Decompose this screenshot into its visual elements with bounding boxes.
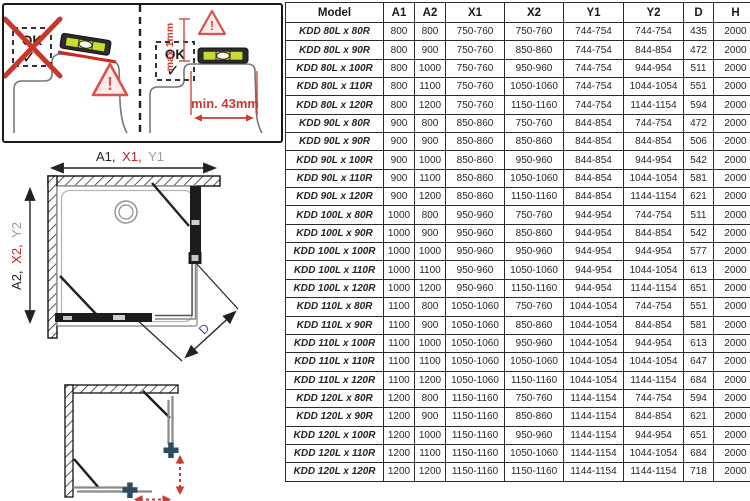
value-cell: 2000 bbox=[714, 334, 750, 352]
min-width-label: min. 43mm bbox=[191, 96, 259, 111]
value-cell: 800 bbox=[384, 59, 415, 77]
value-cell: 1200 bbox=[415, 279, 446, 297]
value-cell: 950-960 bbox=[505, 334, 564, 352]
value-cell: 950-960 bbox=[446, 279, 505, 297]
value-cell: 1200 bbox=[384, 389, 415, 407]
value-cell: 750-760 bbox=[505, 114, 564, 132]
column-header-a2: A2 bbox=[415, 3, 446, 23]
model-cell: KDD 120L x 100R bbox=[286, 426, 384, 444]
wall-top bbox=[65, 385, 178, 393]
model-cell: KDD 110L x 110R bbox=[286, 353, 384, 371]
model-cell: KDD 80L x 90R bbox=[286, 41, 384, 59]
value-cell: 850-860 bbox=[505, 133, 564, 151]
hinge-mark bbox=[192, 255, 199, 261]
column-header-a1: A1 bbox=[384, 3, 415, 23]
value-cell: 1000 bbox=[415, 59, 446, 77]
value-cell: 950-960 bbox=[446, 206, 505, 224]
value-cell: 744-754 bbox=[564, 23, 624, 41]
value-cell: 2000 bbox=[714, 298, 750, 316]
value-cell: 800 bbox=[415, 206, 446, 224]
value-cell: 1050-1060 bbox=[505, 169, 564, 187]
value-cell: 2000 bbox=[714, 389, 750, 407]
value-cell: 1050-1060 bbox=[446, 316, 505, 334]
value-cell: 1144-1154 bbox=[624, 371, 684, 389]
table-row: KDD 100L x 90R1000900950-960850-860944-9… bbox=[286, 224, 750, 242]
value-cell: 1144-1154 bbox=[564, 426, 624, 444]
value-cell: 844-854 bbox=[564, 151, 624, 169]
model-cell: KDD 100L x 110R bbox=[286, 261, 384, 279]
correct-install-figure: OK ✓ max 1mm ! bbox=[150, 11, 262, 133]
table-row: KDD 90L x 120R9001200850-8601150-1160844… bbox=[286, 188, 750, 206]
table-row: KDD 80L x 80R800800750-760750-760744-754… bbox=[286, 23, 750, 41]
value-cell: 950-960 bbox=[446, 261, 505, 279]
dim-a1: A1, bbox=[96, 149, 116, 164]
value-cell: 744-754 bbox=[564, 59, 624, 77]
value-cell: 1050-1060 bbox=[505, 261, 564, 279]
value-cell: 944-954 bbox=[564, 261, 624, 279]
value-cell: 750-760 bbox=[505, 298, 564, 316]
value-cell: 900 bbox=[415, 133, 446, 151]
value-cell: 744-754 bbox=[624, 298, 684, 316]
value-cell: 613 bbox=[684, 261, 714, 279]
value-cell: 950-960 bbox=[505, 59, 564, 77]
value-cell: 850-860 bbox=[505, 224, 564, 242]
value-cell: 844-854 bbox=[624, 224, 684, 242]
value-cell: 1000 bbox=[384, 243, 415, 261]
table-row: KDD 110L x 100R110010001050-1060950-9601… bbox=[286, 334, 750, 352]
value-cell: 944-954 bbox=[624, 243, 684, 261]
value-cell: 950-960 bbox=[505, 151, 564, 169]
dim-y1: Y1 bbox=[148, 149, 164, 164]
value-cell: 2000 bbox=[714, 444, 750, 462]
value-cell: 1100 bbox=[415, 444, 446, 462]
model-cell: KDD 90L x 100R bbox=[286, 151, 384, 169]
value-cell: 1044-1054 bbox=[624, 353, 684, 371]
value-cell: 472 bbox=[684, 41, 714, 59]
value-cell: 1200 bbox=[384, 444, 415, 462]
value-cell: 621 bbox=[684, 188, 714, 206]
handle-cross-icon bbox=[164, 443, 179, 459]
value-cell: 1144-1154 bbox=[564, 389, 624, 407]
value-cell: 1100 bbox=[384, 353, 415, 371]
value-cell: 844-854 bbox=[564, 169, 624, 187]
table-row: KDD 110L x 90R11009001050-1060850-860104… bbox=[286, 316, 750, 334]
value-cell: 2000 bbox=[714, 114, 750, 132]
value-cell: 1044-1054 bbox=[564, 334, 624, 352]
value-cell: 800 bbox=[384, 96, 415, 114]
value-cell: 1100 bbox=[415, 78, 446, 96]
value-cell: 1000 bbox=[415, 151, 446, 169]
value-cell: 1050-1060 bbox=[446, 334, 505, 352]
value-cell: 850-860 bbox=[446, 188, 505, 206]
value-cell: 944-954 bbox=[564, 279, 624, 297]
value-cell: 1050-1060 bbox=[446, 353, 505, 371]
value-cell: 2000 bbox=[714, 206, 750, 224]
value-cell: 2000 bbox=[714, 224, 750, 242]
value-cell: 1100 bbox=[384, 334, 415, 352]
value-cell: 944-954 bbox=[624, 426, 684, 444]
column-header-model: Model bbox=[286, 3, 384, 23]
value-cell: 850-860 bbox=[446, 133, 505, 151]
value-cell: 1150-1160 bbox=[446, 389, 505, 407]
hinge-mark bbox=[63, 316, 72, 320]
model-cell: KDD 120L x 110R bbox=[286, 444, 384, 462]
value-cell: 1000 bbox=[384, 224, 415, 242]
value-cell: 511 bbox=[684, 59, 714, 77]
value-cell: 1044-1054 bbox=[624, 169, 684, 187]
table-row: KDD 110L x 80R11008001050-1060750-760104… bbox=[286, 298, 750, 316]
model-cell: KDD 90L x 90R bbox=[286, 133, 384, 151]
value-cell: 744-754 bbox=[564, 96, 624, 114]
column-header-d: D bbox=[684, 3, 714, 23]
value-cell: 1200 bbox=[384, 463, 415, 481]
value-cell: 2000 bbox=[714, 279, 750, 297]
model-cell: KDD 110L x 80R bbox=[286, 298, 384, 316]
value-cell: 577 bbox=[684, 243, 714, 261]
value-cell: 2000 bbox=[714, 408, 750, 426]
value-cell: 1000 bbox=[415, 426, 446, 444]
hinge-mark bbox=[113, 315, 125, 320]
value-cell: 651 bbox=[684, 426, 714, 444]
value-cell: 850-860 bbox=[505, 408, 564, 426]
model-cell: KDD 110L x 120R bbox=[286, 371, 384, 389]
door-brace-bottom bbox=[74, 459, 99, 488]
value-cell: 684 bbox=[684, 444, 714, 462]
table-row: KDD 90L x 110R9001100850-8601050-1060844… bbox=[286, 169, 750, 187]
value-cell: 900 bbox=[384, 188, 415, 206]
value-cell: 850-860 bbox=[505, 41, 564, 59]
value-cell: 2000 bbox=[714, 133, 750, 151]
value-cell: 800 bbox=[415, 298, 446, 316]
value-cell: 1050-1060 bbox=[505, 353, 564, 371]
max-gap-label: max 1mm bbox=[164, 23, 176, 71]
value-cell: 1150-1160 bbox=[446, 463, 505, 481]
model-cell: KDD 120L x 120R bbox=[286, 463, 384, 481]
value-cell: 750-760 bbox=[505, 206, 564, 224]
value-cell: 2000 bbox=[714, 426, 750, 444]
dim-label-vertical: A2, X2, Y2 bbox=[9, 222, 24, 290]
value-cell: 435 bbox=[684, 23, 714, 41]
value-cell: 1050-1060 bbox=[505, 444, 564, 462]
level-guide-drawing: OK ✓ ! OK ✓ bbox=[4, 5, 277, 137]
column-header-x2: X2 bbox=[505, 3, 564, 23]
value-cell: 1044-1054 bbox=[564, 353, 624, 371]
swing-direction-arrows bbox=[135, 456, 184, 501]
value-cell: 900 bbox=[415, 41, 446, 59]
value-cell: 1050-1060 bbox=[505, 78, 564, 96]
table-row: KDD 100L x 80R1000800950-960750-760944-9… bbox=[286, 206, 750, 224]
value-cell: 651 bbox=[684, 279, 714, 297]
value-cell: 1150-1160 bbox=[446, 444, 505, 462]
value-cell: 800 bbox=[415, 23, 446, 41]
value-cell: 1100 bbox=[415, 261, 446, 279]
value-cell: 1000 bbox=[415, 334, 446, 352]
value-cell: 1144-1154 bbox=[624, 463, 684, 481]
dim-x2: X2, bbox=[9, 244, 24, 264]
value-cell: 944-954 bbox=[564, 224, 624, 242]
model-cell: KDD 80L x 100R bbox=[286, 59, 384, 77]
value-cell: 647 bbox=[684, 353, 714, 371]
dim-a2: A2, bbox=[9, 270, 24, 290]
value-cell: 1044-1054 bbox=[564, 316, 624, 334]
value-cell: 750-760 bbox=[505, 23, 564, 41]
dim-y2: Y2 bbox=[9, 222, 24, 238]
shower-tray bbox=[57, 186, 197, 326]
value-cell: 1044-1054 bbox=[564, 371, 624, 389]
value-cell: 1150-1160 bbox=[446, 408, 505, 426]
handle-cross-icon bbox=[123, 483, 138, 499]
value-cell: 1150-1160 bbox=[505, 371, 564, 389]
value-cell: 2000 bbox=[714, 78, 750, 96]
column-header-y2: Y2 bbox=[624, 3, 684, 23]
value-cell: 944-954 bbox=[564, 206, 624, 224]
value-cell: 1150-1160 bbox=[505, 279, 564, 297]
dim-label-horizontal: A1, X1, Y1 bbox=[96, 149, 164, 164]
column-header-y1: Y1 bbox=[564, 3, 624, 23]
value-cell: 1000 bbox=[384, 261, 415, 279]
value-cell: 2000 bbox=[714, 243, 750, 261]
value-cell: 844-854 bbox=[564, 188, 624, 206]
value-cell: 800 bbox=[384, 23, 415, 41]
door-brace-right bbox=[143, 391, 170, 418]
value-cell: 744-754 bbox=[624, 389, 684, 407]
spec-sheet: OK ✓ ! OK ✓ bbox=[0, 0, 750, 501]
value-cell: 1044-1054 bbox=[624, 444, 684, 462]
value-cell: 581 bbox=[684, 316, 714, 334]
table-row: KDD 100L x 100R10001000950-960950-960944… bbox=[286, 243, 750, 261]
table-row: KDD 80L x 110R8001100750-7601050-1060744… bbox=[286, 78, 750, 96]
value-cell: 844-854 bbox=[624, 133, 684, 151]
value-cell: 621 bbox=[684, 408, 714, 426]
table-row: KDD 120L x 100R120010001150-1160950-9601… bbox=[286, 426, 750, 444]
value-cell: 844-854 bbox=[624, 41, 684, 59]
model-cell: KDD 100L x 100R bbox=[286, 243, 384, 261]
value-cell: 2000 bbox=[714, 23, 750, 41]
value-cell: 944-954 bbox=[624, 334, 684, 352]
value-cell: 844-854 bbox=[564, 114, 624, 132]
model-cell: KDD 80L x 120R bbox=[286, 96, 384, 114]
value-cell: 1000 bbox=[384, 206, 415, 224]
value-cell: 1144-1154 bbox=[624, 279, 684, 297]
exclamation-icon: ! bbox=[210, 18, 214, 33]
value-cell: 1000 bbox=[415, 243, 446, 261]
value-cell: 1044-1054 bbox=[564, 298, 624, 316]
model-cell: KDD 110L x 100R bbox=[286, 334, 384, 352]
value-cell: 750-760 bbox=[446, 23, 505, 41]
model-cell: KDD 90L x 110R bbox=[286, 169, 384, 187]
value-cell: 744-754 bbox=[624, 23, 684, 41]
value-cell: 800 bbox=[415, 114, 446, 132]
value-cell: 944-954 bbox=[624, 151, 684, 169]
value-cell: 744-754 bbox=[624, 206, 684, 224]
value-cell: 1150-1160 bbox=[505, 463, 564, 481]
value-cell: 844-854 bbox=[624, 408, 684, 426]
value-cell: 1050-1060 bbox=[446, 371, 505, 389]
value-cell: 744-754 bbox=[564, 41, 624, 59]
table-row: KDD 100L x 120R10001200950-9601150-11609… bbox=[286, 279, 750, 297]
model-cell: KDD 90L x 80R bbox=[286, 114, 384, 132]
model-cell: KDD 120L x 80R bbox=[286, 389, 384, 407]
value-cell: 1100 bbox=[415, 353, 446, 371]
model-cell: KDD 100L x 90R bbox=[286, 224, 384, 242]
table-row: KDD 80L x 120R8001200750-7601150-1160744… bbox=[286, 96, 750, 114]
value-cell: 511 bbox=[684, 206, 714, 224]
value-cell: 944-954 bbox=[564, 243, 624, 261]
model-cell: KDD 90L x 120R bbox=[286, 188, 384, 206]
value-cell: 750-760 bbox=[505, 389, 564, 407]
model-cell: KDD 100L x 80R bbox=[286, 206, 384, 224]
table-row: KDD 120L x 90R12009001150-1160850-860114… bbox=[286, 408, 750, 426]
value-cell: 2000 bbox=[714, 261, 750, 279]
value-cell: 542 bbox=[684, 151, 714, 169]
value-cell: 718 bbox=[684, 463, 714, 481]
value-cell: 1150-1160 bbox=[446, 426, 505, 444]
value-cell: 1100 bbox=[384, 371, 415, 389]
value-cell: 1144-1154 bbox=[624, 96, 684, 114]
value-cell: 2000 bbox=[714, 371, 750, 389]
spec-table-header-row: ModelA1A2X1X2Y1Y2DH bbox=[286, 3, 750, 23]
value-cell: 506 bbox=[684, 133, 714, 151]
value-cell: 800 bbox=[384, 78, 415, 96]
value-cell: 744-754 bbox=[564, 78, 624, 96]
value-cell: 1150-1160 bbox=[505, 96, 564, 114]
table-row: KDD 120L x 120R120012001150-11601150-116… bbox=[286, 463, 750, 481]
value-cell: 1200 bbox=[415, 463, 446, 481]
value-cell: 750-760 bbox=[446, 41, 505, 59]
value-cell: 2000 bbox=[714, 316, 750, 334]
table-row: KDD 120L x 80R12008001150-1160750-760114… bbox=[286, 389, 750, 407]
value-cell: 2000 bbox=[714, 151, 750, 169]
exclamation-icon: ! bbox=[107, 74, 113, 94]
value-cell: 594 bbox=[684, 389, 714, 407]
value-cell: 1200 bbox=[415, 96, 446, 114]
value-cell: 1150-1160 bbox=[505, 188, 564, 206]
table-row: KDD 80L x 90R800900750-760850-860744-754… bbox=[286, 41, 750, 59]
value-cell: 594 bbox=[684, 96, 714, 114]
table-row: KDD 110L x 120R110012001050-10601150-116… bbox=[286, 371, 750, 389]
model-cell: KDD 110L x 90R bbox=[286, 316, 384, 334]
value-cell: 750-760 bbox=[446, 96, 505, 114]
value-cell: 581 bbox=[684, 169, 714, 187]
value-cell: 2000 bbox=[714, 59, 750, 77]
value-cell: 1050-1060 bbox=[446, 298, 505, 316]
value-cell: 850-860 bbox=[446, 151, 505, 169]
table-row: KDD 90L x 90R900900850-860850-860844-854… bbox=[286, 133, 750, 151]
value-cell: 900 bbox=[384, 133, 415, 151]
value-cell: 900 bbox=[415, 316, 446, 334]
warning-triangle-icon: ! bbox=[199, 11, 225, 34]
table-row: KDD 90L x 80R900800850-860750-760844-854… bbox=[286, 114, 750, 132]
table-row: KDD 120L x 110R120011001150-11601050-106… bbox=[286, 444, 750, 462]
value-cell: 542 bbox=[684, 224, 714, 242]
table-row: KDD 90L x 100R9001000850-860950-960844-8… bbox=[286, 151, 750, 169]
value-cell: 1100 bbox=[384, 298, 415, 316]
value-cell: 844-854 bbox=[564, 133, 624, 151]
value-cell: 1144-1154 bbox=[564, 444, 624, 462]
value-cell: 551 bbox=[684, 78, 714, 96]
value-cell: 1200 bbox=[384, 408, 415, 426]
value-cell: 900 bbox=[384, 169, 415, 187]
spec-table: ModelA1A2X1X2Y1Y2DH KDD 80L x 80R8008007… bbox=[285, 2, 750, 482]
value-cell: 750-760 bbox=[446, 78, 505, 96]
value-cell: 744-754 bbox=[624, 114, 684, 132]
table-row: KDD 110L x 110R110011001050-10601050-106… bbox=[286, 353, 750, 371]
top-view-diagram: A1, X1, Y1 A2, X2, Y2 D bbox=[5, 146, 260, 376]
value-cell: 1200 bbox=[384, 426, 415, 444]
value-cell: 684 bbox=[684, 371, 714, 389]
wall-left bbox=[65, 385, 73, 497]
value-cell: 950-960 bbox=[446, 243, 505, 261]
value-cell: 900 bbox=[415, 408, 446, 426]
value-cell: 800 bbox=[384, 41, 415, 59]
value-cell: 850-860 bbox=[446, 169, 505, 187]
value-cell: 1100 bbox=[415, 169, 446, 187]
value-cell: 944-954 bbox=[624, 59, 684, 77]
value-cell: 2000 bbox=[714, 353, 750, 371]
value-cell: 800 bbox=[415, 389, 446, 407]
value-cell: 2000 bbox=[714, 41, 750, 59]
value-cell: 2000 bbox=[714, 188, 750, 206]
model-cell: KDD 100L x 120R bbox=[286, 279, 384, 297]
value-cell: 850-860 bbox=[505, 316, 564, 334]
min-width-callout: min. 43mm bbox=[191, 71, 259, 122]
value-cell: 1100 bbox=[384, 316, 415, 334]
value-cell: 1200 bbox=[415, 188, 446, 206]
table-row: KDD 80L x 100R8001000750-760950-960744-7… bbox=[286, 59, 750, 77]
column-header-x1: X1 bbox=[446, 3, 505, 23]
value-cell: 2000 bbox=[714, 463, 750, 481]
value-cell: 1144-1154 bbox=[624, 188, 684, 206]
value-cell: 551 bbox=[684, 298, 714, 316]
value-cell: 1044-1054 bbox=[624, 78, 684, 96]
value-cell: 950-960 bbox=[505, 426, 564, 444]
value-cell: 900 bbox=[384, 114, 415, 132]
spec-table-body: KDD 80L x 80R800800750-760750-760744-754… bbox=[286, 23, 750, 482]
value-cell: 1000 bbox=[384, 279, 415, 297]
value-cell: 613 bbox=[684, 334, 714, 352]
model-cell: KDD 80L x 80R bbox=[286, 23, 384, 41]
spirit-level-icon bbox=[198, 48, 248, 63]
dim-x1: X1, bbox=[122, 149, 142, 164]
hinge-mark bbox=[192, 220, 200, 225]
value-cell: 850-860 bbox=[446, 114, 505, 132]
value-cell: 844-854 bbox=[624, 316, 684, 334]
value-cell: 2000 bbox=[714, 96, 750, 114]
value-cell: 2000 bbox=[714, 169, 750, 187]
corner-diagram bbox=[55, 378, 205, 501]
value-cell: 472 bbox=[684, 114, 714, 132]
value-cell: 1200 bbox=[415, 371, 446, 389]
value-cell: 900 bbox=[384, 151, 415, 169]
model-cell: KDD 80L x 110R bbox=[286, 78, 384, 96]
table-row: KDD 100L x 110R10001100950-9601050-10609… bbox=[286, 261, 750, 279]
column-header-h: H bbox=[714, 3, 750, 23]
value-cell: 1044-1054 bbox=[624, 261, 684, 279]
value-cell: 1144-1154 bbox=[564, 463, 624, 481]
value-cell: 900 bbox=[415, 224, 446, 242]
level-guide-panel: OK ✓ ! OK ✓ bbox=[2, 3, 283, 143]
model-cell: KDD 120L x 90R bbox=[286, 408, 384, 426]
value-cell: 750-760 bbox=[446, 59, 505, 77]
value-cell: 950-960 bbox=[505, 243, 564, 261]
value-cell: 1144-1154 bbox=[564, 408, 624, 426]
wall-top bbox=[48, 176, 220, 186]
warning-triangle-icon: ! bbox=[93, 64, 127, 95]
value-cell: 950-960 bbox=[446, 224, 505, 242]
wrong-install-figure: OK ✓ ! bbox=[5, 19, 127, 133]
